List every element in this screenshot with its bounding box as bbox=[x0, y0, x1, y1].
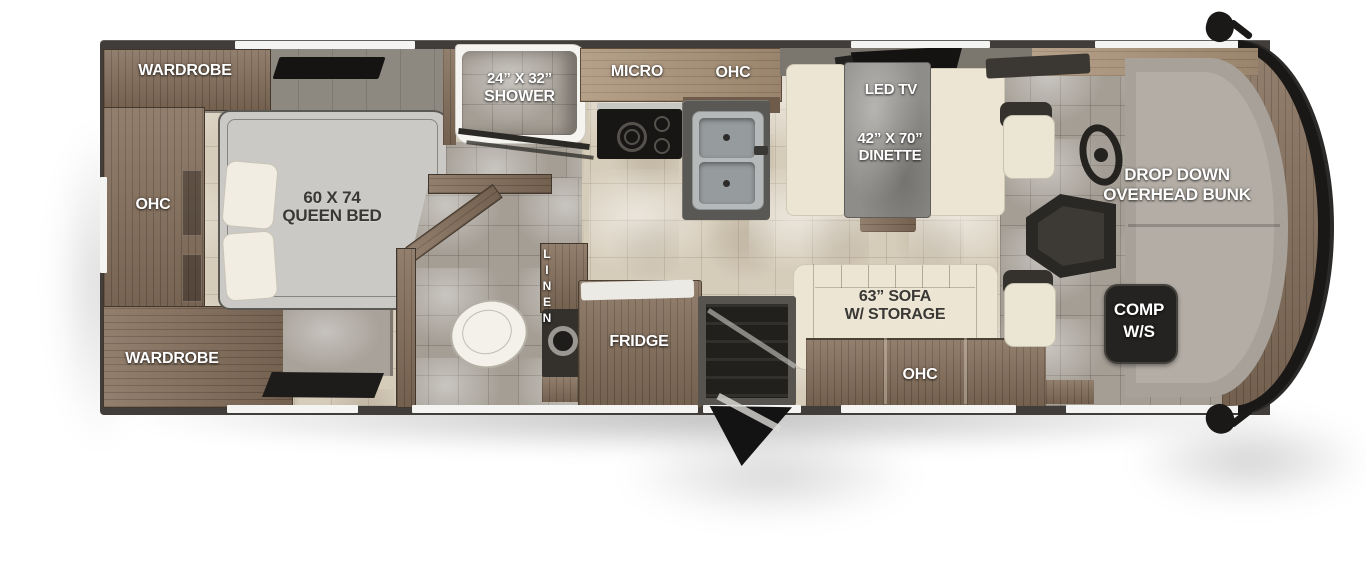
window bbox=[851, 41, 990, 48]
wardrobe-top-label: WARDROBE bbox=[110, 62, 260, 79]
bunk-label-line2: OVERHEAD BUNK bbox=[1077, 186, 1277, 204]
window bbox=[235, 41, 415, 49]
shower-name-label: SHOWER bbox=[459, 88, 580, 105]
window bbox=[412, 405, 698, 413]
fridge-label: FRIDGE bbox=[579, 333, 699, 350]
steering-hub bbox=[1094, 148, 1108, 162]
comp-ws-label-line1: COMP bbox=[1104, 301, 1174, 319]
window bbox=[841, 405, 1016, 413]
ohc-kitchen-label: OHC bbox=[703, 64, 763, 81]
sink-drain bbox=[723, 180, 730, 187]
cabinet-divider bbox=[884, 338, 887, 404]
sink-drain bbox=[723, 134, 730, 141]
dinette-size-label: 42” X 70” bbox=[840, 131, 940, 147]
wardrobe-bottom-label: WARDROBE bbox=[107, 350, 237, 367]
sofa-storage-label: W/ STORAGE bbox=[815, 306, 975, 323]
bunk-seam bbox=[1128, 224, 1280, 227]
bedroom-floor-mat bbox=[262, 372, 384, 398]
sofa-size-label: 63” SOFA bbox=[815, 288, 975, 305]
step-shadow bbox=[620, 430, 920, 520]
passenger-seat bbox=[1004, 283, 1056, 347]
fridge-top bbox=[581, 280, 694, 301]
stove-burner bbox=[654, 116, 670, 132]
bed-name-label: QUEEN BED bbox=[252, 207, 412, 225]
dinette-bench bbox=[786, 64, 848, 216]
dinette-name-label: DINETTE bbox=[840, 148, 940, 164]
ohc-bedroom-label: OHC bbox=[103, 196, 203, 213]
comp-ws-label-line2: W/S bbox=[1104, 323, 1174, 341]
bed-base bbox=[283, 302, 393, 376]
rv-floorplan: WARDROBE OHC 60 X 74 QUEEN BED WARDROBE … bbox=[0, 0, 1366, 570]
driver-seat bbox=[1003, 115, 1055, 179]
washer-door bbox=[548, 326, 578, 356]
stove-burner bbox=[624, 129, 640, 145]
bedroom-tv-icon bbox=[272, 57, 385, 79]
cabinet-extension bbox=[1046, 380, 1094, 404]
bed-pillow bbox=[222, 230, 279, 301]
shower-size-label: 24” X 32” bbox=[459, 71, 580, 87]
bathroom-wall bbox=[396, 248, 416, 408]
stove-burner bbox=[654, 138, 670, 154]
wardrobe-top-cabinet bbox=[103, 49, 271, 111]
window bbox=[100, 177, 107, 273]
linen-label: LINEN bbox=[540, 247, 586, 309]
micro-label: MICRO bbox=[597, 63, 677, 80]
window bbox=[227, 405, 358, 413]
led-tv-label: LED TV bbox=[846, 82, 936, 98]
bunk-label-line1: DROP DOWN bbox=[1077, 166, 1277, 184]
sink-faucet bbox=[754, 146, 768, 155]
cabinet-divider bbox=[964, 338, 967, 404]
sofa-back-tufting bbox=[815, 265, 975, 288]
cabinet-cubby bbox=[182, 254, 202, 302]
front-shadow bbox=[1130, 415, 1366, 505]
bed-size-label: 60 X 74 bbox=[252, 189, 412, 207]
ohc-sofa-label: OHC bbox=[890, 366, 950, 383]
